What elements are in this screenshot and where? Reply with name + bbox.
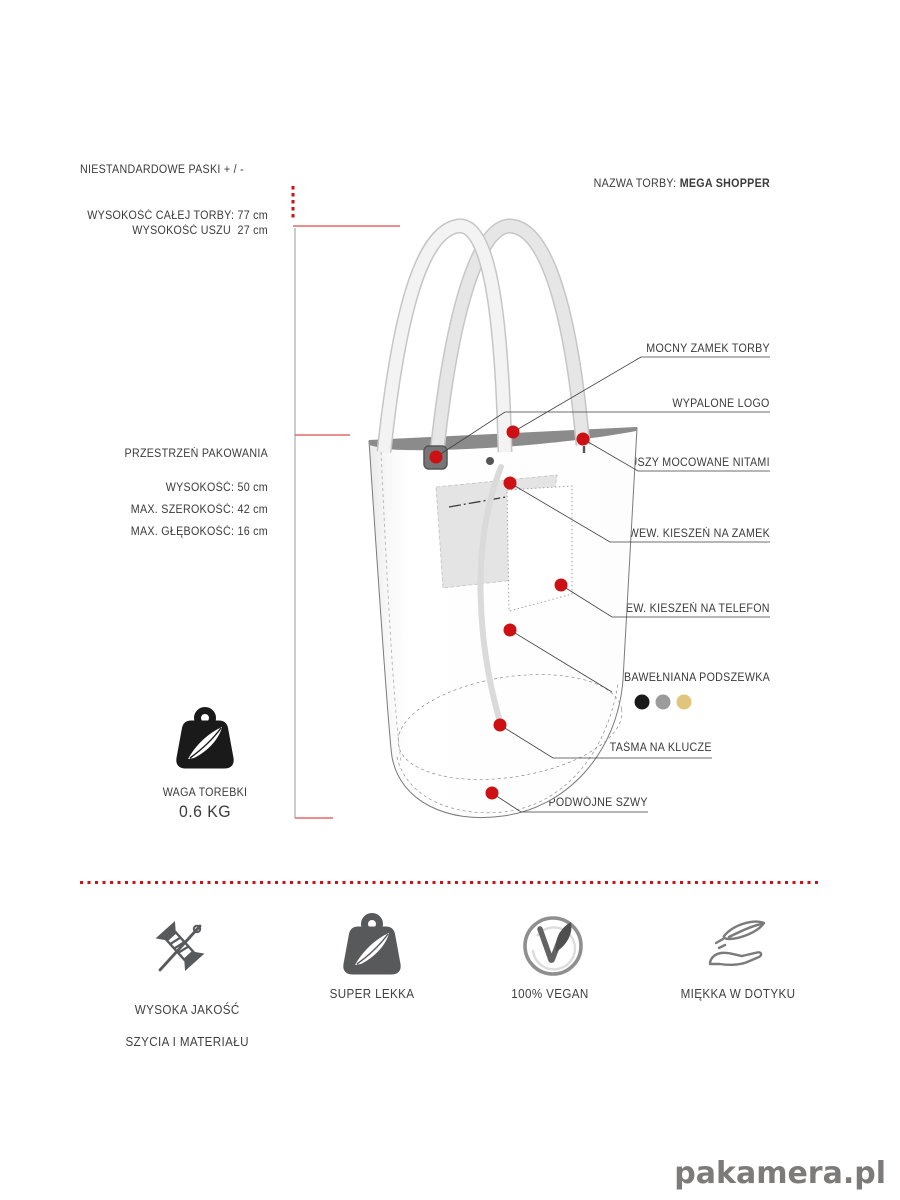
bag-handles	[384, 226, 583, 452]
packing-max-width: MAX. SZEROKOŚĆ: 42 cm	[0, 503, 268, 517]
base-dashed-ellipse	[391, 660, 630, 794]
callout-logo: WYPALONE LOGO	[673, 398, 770, 410]
bag-name-line: NAZWA TORBY: MEGA SHOPPER	[491, 163, 770, 205]
weight-value: 0.6 KG	[112, 802, 298, 822]
weight-label: WAGA TOREBKI	[112, 786, 298, 800]
callout-double-seams: PODWÓJNE SZWY	[549, 797, 648, 809]
front-handle	[384, 226, 505, 452]
weight-icon	[175, 706, 235, 772]
callout-zip-pocket: WEW. KIESZEŃ NA ZAMEK	[629, 528, 770, 540]
base-outline-group	[391, 660, 630, 794]
leader-zipper	[513, 357, 770, 432]
feature-quality-line1: WYSOKA JAKOŚĆ	[135, 1003, 240, 1017]
zip-pocket	[436, 475, 557, 588]
brand-logo: pakamera.pl	[674, 1156, 886, 1191]
feature-markers	[430, 426, 590, 800]
callout-lining: BAWEŁNIANA PODSZEWKA	[624, 672, 770, 684]
lining-swatch-black	[635, 695, 650, 710]
handle-height-label: WYSOKOŚĆ USZU 27 cm	[0, 224, 268, 238]
rear-handle-outline	[437, 226, 583, 452]
lining-swatch-gray	[656, 695, 671, 710]
marker-rivets	[577, 433, 590, 446]
bag-name-value: MEGA SHOPPER	[680, 178, 770, 190]
feature-quality-caption: WYSOKA JAKOŚĆ SZYCIA I MATERIAŁU	[78, 986, 283, 1066]
zipper-line	[449, 489, 551, 507]
lining-swatches	[635, 695, 692, 710]
packing-height: WYSOKOŚĆ: 50 cm	[0, 481, 268, 495]
dotted-divider	[80, 881, 820, 884]
key-strap	[481, 467, 501, 722]
callout-phone-pocket: WEW. KIESZEŃ NA TELEFON	[616, 603, 770, 615]
bag-body	[369, 428, 637, 818]
bag-name-label: NAZWA TORBY:	[594, 178, 680, 190]
product-infographic: NIESTANDARDOWE PASKI + / - WYSOKOŚĆ CAŁE…	[0, 0, 900, 1200]
leader-lining	[510, 630, 612, 692]
bottom-stitch-line	[397, 684, 618, 813]
burned-logo-patch	[424, 446, 447, 469]
marker-key-strap	[494, 719, 507, 732]
soft-touch-icon	[702, 916, 772, 976]
marker-zip-pocket	[504, 477, 517, 490]
super-light-icon	[342, 912, 402, 978]
feature-vegan-caption: 100% VEGAN	[448, 986, 653, 1002]
phone-pocket	[507, 486, 572, 611]
sewing-quality-icon	[150, 914, 212, 976]
leader-logo	[436, 412, 770, 457]
marker-zipper	[507, 426, 520, 439]
lining-swatch-beige	[677, 695, 692, 710]
marker-phone-pocket	[555, 579, 568, 592]
marker-logo	[430, 451, 443, 464]
vegan-icon	[521, 914, 585, 978]
left-stitch-line	[381, 452, 401, 762]
feature-light-caption: SUPER LEKKA	[270, 986, 475, 1002]
feature-soft-caption: MIĘKKA W DOTYKU	[636, 986, 841, 1002]
feature-quality-line2: SZYCIA I MATERIAŁU	[125, 1035, 248, 1049]
rear-handle	[437, 226, 583, 452]
custom-straps-label: NIESTANDARDOWE PASKI + / -	[0, 163, 244, 177]
callout-zipper: MOCNY ZAMEK TORBY	[646, 343, 770, 355]
marker-lining	[504, 624, 517, 637]
callout-leaders	[436, 357, 770, 812]
bag-rim	[369, 427, 637, 450]
total-height-label: WYSOKOŚĆ CAŁEJ TORBY: 77 cm	[0, 209, 268, 223]
packing-space-title: PRZESTRZEŃ PAKOWANIA	[0, 447, 268, 461]
callout-key-strap: TAŚMA NA KLUCZE	[610, 742, 712, 754]
marker-double-seams	[486, 787, 499, 800]
front-handle-outline	[384, 226, 505, 452]
callout-rivets: USZY MOCOWANE NITAMI	[630, 457, 770, 469]
packing-max-depth: MAX. GŁĘBOKOŚĆ: 16 cm	[0, 525, 268, 539]
rivet-dot	[486, 457, 494, 465]
